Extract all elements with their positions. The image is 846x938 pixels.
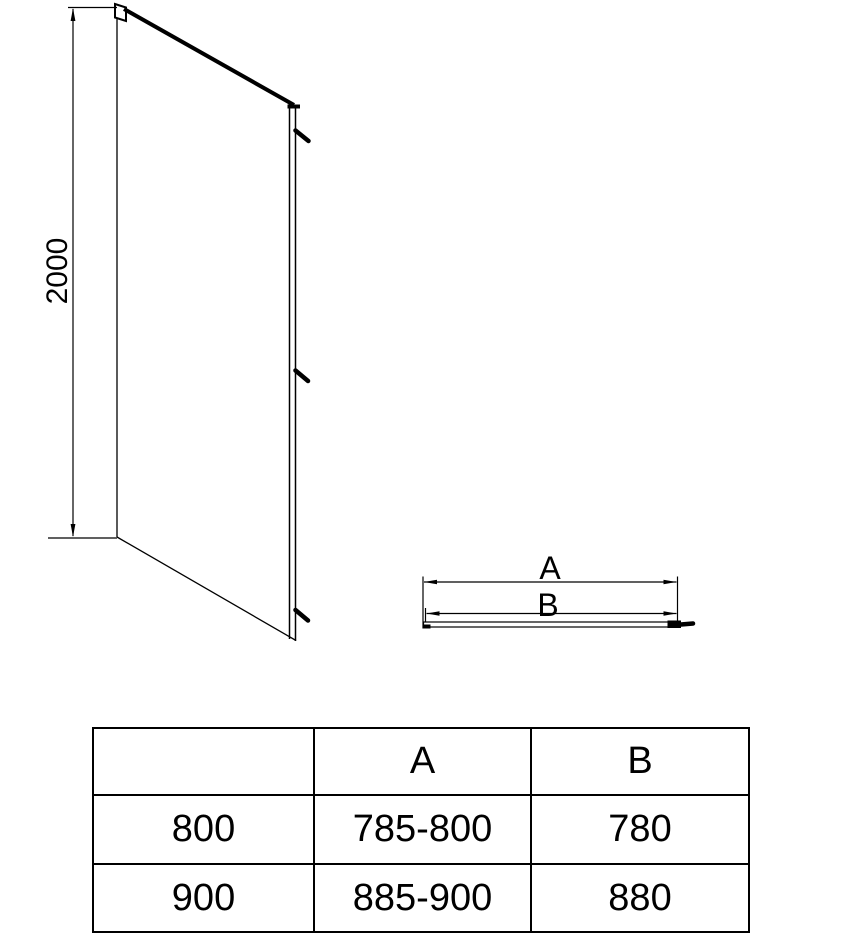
panel-top-view: A B <box>423 550 693 629</box>
header-cell-size <box>93 728 314 795</box>
arrow-down-icon <box>71 524 76 537</box>
cell-size-900: 900 <box>93 864 314 932</box>
wall-profile-top-left <box>115 4 126 21</box>
cell-size-800: 800 <box>93 795 314 864</box>
technical-drawing-page: 2000 A B <box>0 0 846 938</box>
size-table: A B 800 785-800 780 900 885-900 880 <box>92 727 750 933</box>
panel-top-edge <box>124 9 294 105</box>
panel-bottom-edge <box>117 537 296 641</box>
arrow-left-b-icon <box>427 611 440 616</box>
table-row: 900 885-900 880 <box>93 864 749 932</box>
header-cell-a: A <box>314 728 531 795</box>
height-dimension: 2000 <box>41 8 117 539</box>
glass-top-view-bar <box>424 622 679 627</box>
dimension-a-label: A <box>539 550 561 586</box>
height-dimension-label: 2000 <box>41 238 74 305</box>
arrow-right-b-icon <box>664 611 677 616</box>
cell-a-800: 785-800 <box>314 795 531 864</box>
arrow-left-a-icon <box>424 580 437 585</box>
cell-a-900: 885-900 <box>314 864 531 932</box>
table-row: 800 785-800 780 <box>93 795 749 864</box>
cell-b-900: 880 <box>531 864 749 932</box>
panel-front-view <box>115 4 309 641</box>
cell-b-800: 780 <box>531 795 749 864</box>
wall-profile-pin-top-view <box>681 624 693 625</box>
mounting-pin-top-icon <box>296 131 309 142</box>
mounting-pin-middle-icon <box>296 371 309 382</box>
arrow-right-a-icon <box>664 580 677 585</box>
arrow-up-icon <box>71 8 76 21</box>
table-header-row: A B <box>93 728 749 795</box>
header-cell-b: B <box>531 728 749 795</box>
mounting-pin-bottom-icon <box>296 610 309 621</box>
glass-end-cap-top-view <box>423 625 431 629</box>
dimension-b-label: B <box>537 587 558 623</box>
